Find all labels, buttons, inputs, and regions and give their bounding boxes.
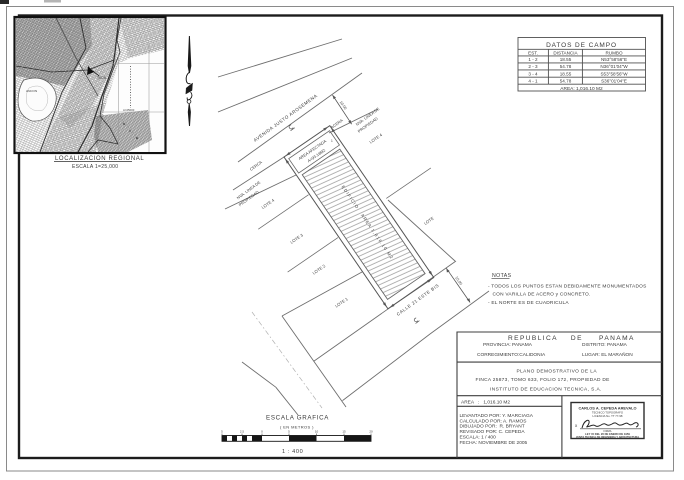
svg-text:LEVANTADO POR: Y. MARCIAGA: LEVANTADO POR: Y. MARCIAGA — [460, 413, 534, 419]
svg-text:ESCALA 1=25,000: ESCALA 1=25,000 — [72, 164, 118, 170]
svg-text:10: 10 — [315, 430, 319, 434]
svg-text:18.55: 18.55 — [560, 57, 572, 62]
svg-text:20: 20 — [369, 430, 373, 434]
svg-text:54.78: 54.78 — [560, 64, 572, 69]
svg-text:PLANO DEMOSTRATIVO DE LA: PLANO DEMOSTRATIVO DE LA — [517, 368, 598, 374]
svg-text:CORREGIMIENTO:CALIDONIA: CORREGIMIENTO:CALIDONIA — [477, 352, 546, 358]
svg-text:JUNTA TECNICA DE INGENIERIA Y: JUNTA TECNICA DE INGENIERIA Y ARQUITECTU… — [576, 435, 639, 439]
svg-text:- TODOS LOS PUNTOS ESTAN DEBID: - TODOS LOS PUNTOS ESTAN DEBIDAMENTE MON… — [488, 284, 647, 290]
svg-text:1 : 400: 1 : 400 — [282, 449, 303, 455]
svg-text:DIBUJADO POR: R. BRYANT: DIBUJADO POR: R. BRYANT — [460, 424, 525, 430]
svg-text:( EN METROS ): ( EN METROS ) — [280, 425, 314, 430]
svg-text:15: 15 — [342, 430, 346, 434]
svg-text:TECA: TECA — [97, 76, 107, 80]
svg-text:1 - 2: 1 - 2 — [528, 57, 538, 62]
svg-text:- EL NORTE ES DE CUADRICULA: - EL NORTE ES DE CUADRICULA — [488, 300, 569, 306]
svg-text:2.5: 2.5 — [240, 430, 245, 434]
svg-text:N53°58'56"E: N53°58'56"E — [601, 57, 627, 62]
svg-text:ESCALA GRAFICA: ESCALA GRAFICA — [266, 415, 329, 422]
svg-text:DISTRITO: PANAMA: DISTRITO: PANAMA — [582, 342, 628, 348]
svg-text:INSTITUTO DE EDUCACION TECN: INSTITUTO DE EDUCACION TECNICA, S.A. — [490, 387, 602, 393]
svg-text:REVISADO POR: C. CEPEDA: REVISADO POR: C. CEPEDA — [460, 429, 526, 435]
svg-text:1: 1 — [331, 139, 333, 143]
svg-text:LICENCIA No. TT 77-98: LICENCIA No. TT 77-98 — [593, 414, 623, 418]
svg-text:ESCALA: 1 / 400: ESCALA: 1 / 400 — [460, 435, 497, 441]
svg-text:LOCALIZACION REGIONAL: LOCALIZACION REGIONAL — [55, 156, 144, 162]
svg-text:CON VARILLA DE ACERO y CONCRET: CON VARILLA DE ACERO y CONCRETO. — [493, 291, 591, 297]
svg-text:AREA: 1,016.10 M2: AREA: 1,016.10 M2 — [560, 86, 603, 92]
svg-text:RUMBO: RUMBO — [605, 50, 623, 55]
svg-text:DATOS DE CAMPO: DATOS DE CAMPO — [546, 42, 617, 49]
svg-text:18.55: 18.55 — [560, 71, 572, 76]
svg-text:FECHA: NOVIEMBRE DE 2005: FECHA: NOVIEMBRE DE 2005 — [460, 440, 528, 446]
svg-text:LUGAR: EL MARAÑON: LUGAR: EL MARAÑON — [582, 351, 633, 358]
svg-text:DISTANCIA: DISTANCIA — [553, 50, 578, 55]
svg-text:2 - 3: 2 - 3 — [528, 64, 538, 69]
svg-text:PROVINCIA: PANAMA: PROVINCIA: PANAMA — [483, 342, 533, 348]
svg-text:4 - 1: 4 - 1 — [528, 78, 538, 83]
svg-text:REPUBLICA DE PANAMA: REPUBLICA DE PANAMA — [508, 335, 635, 342]
svg-text:S36°01'04"E: S36°01'04"E — [601, 78, 627, 83]
svg-text:AREA : 1,016.10 M2: AREA : 1,016.10 M2 — [461, 400, 510, 406]
svg-text:CALCULADO POR: A. RAMOS: CALCULADO POR: A. RAMOS — [460, 418, 527, 424]
svg-text:ANCON: ANCON — [26, 89, 37, 93]
svg-text:FINCA 25873, TOMO 633, FOL: FINCA 25873, TOMO 633, FOLIO 172, PROPIE… — [476, 377, 610, 383]
svg-text:N36°01'04"W: N36°01'04"W — [600, 64, 628, 69]
svg-text:A=25000: A=25000 — [123, 108, 135, 112]
svg-text:S53°58'56"W: S53°58'56"W — [600, 71, 628, 76]
svg-text:EST.: EST. — [528, 50, 538, 55]
svg-text:3 - 4: 3 - 4 — [528, 71, 538, 76]
svg-text:54.78: 54.78 — [560, 78, 572, 83]
